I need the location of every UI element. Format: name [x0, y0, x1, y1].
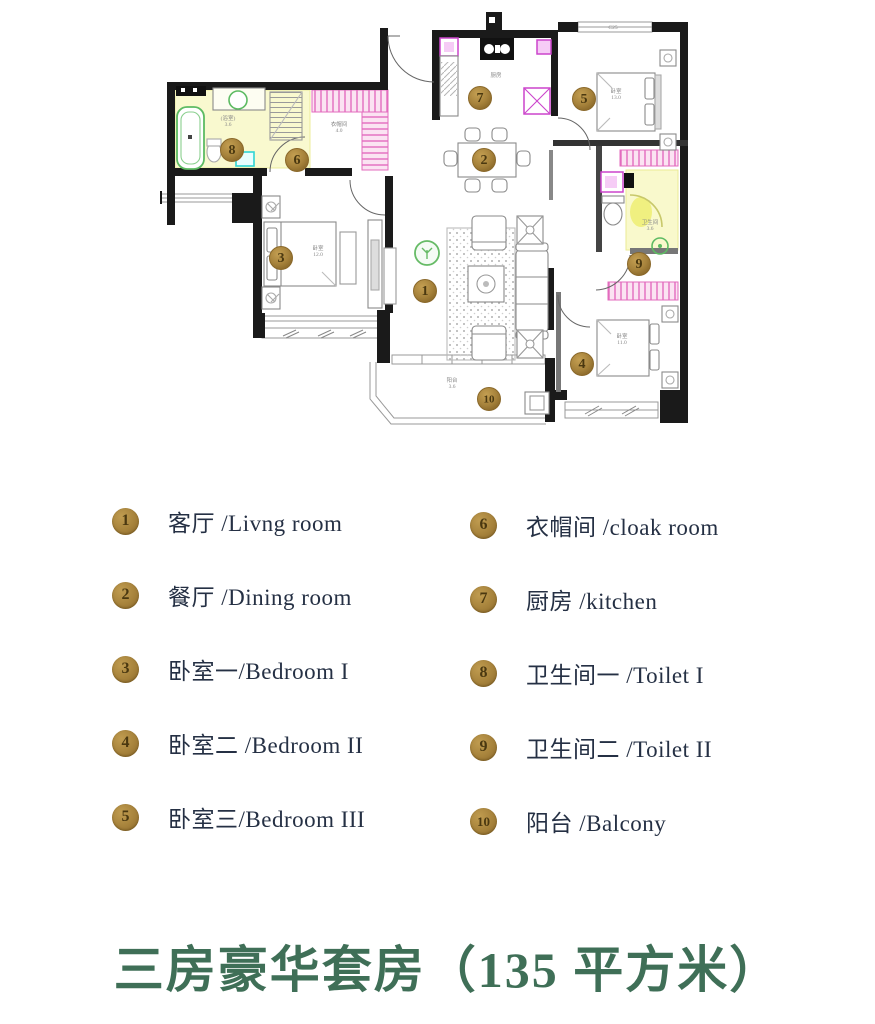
- entry-door-arc: [388, 36, 434, 82]
- toilet2-bowl: [604, 203, 622, 225]
- room-marker-2: 2: [473, 149, 496, 172]
- legend-number-badge: 7: [470, 586, 497, 613]
- bedroom1-door-arc: [350, 180, 385, 215]
- headboard: [655, 75, 661, 129]
- legend-number-badge: 1: [112, 508, 139, 535]
- area-label: 阳台3.6: [446, 376, 458, 390]
- plan-title: 三房豪华套房（135 平方米）: [10, 930, 875, 1002]
- cloak-wardrobe-right: [362, 112, 388, 170]
- wall: [432, 30, 440, 120]
- legend-label: 卧室二 /Bedroom II: [168, 726, 363, 760]
- legend-item-3: 3卧室一/Bedroom I: [112, 651, 349, 687]
- page: (浴室)3.6衣帽间4.0厨房C25卧室13.0卫生间3.6卧室12.0卧室11…: [0, 0, 875, 1024]
- legend-label: 卫生间二 /Toilet II: [526, 730, 712, 764]
- wall: [330, 168, 352, 176]
- wall: [377, 310, 390, 363]
- legend-number-badge: 8: [470, 660, 497, 687]
- room-marker-number: 7: [477, 91, 484, 106]
- wall: [160, 191, 162, 204]
- pillow: [645, 104, 654, 125]
- legend-label: 餐厅 /Dining room: [168, 578, 352, 612]
- area-label: C25: [608, 25, 617, 31]
- chair: [517, 151, 530, 166]
- room-marker-3: 3: [270, 247, 293, 270]
- armchair: [472, 326, 506, 360]
- cabinet: [624, 173, 634, 188]
- room-marker-1: 1: [414, 280, 437, 303]
- room-marker-number: 10: [484, 394, 496, 406]
- legend-number-badge: 4: [112, 730, 139, 757]
- room-marker-number: 4: [579, 357, 586, 372]
- floor-plan: (浴室)3.6衣帽间4.0厨房C25卧室13.0卫生间3.6卧室12.0卧室11…: [160, 8, 695, 432]
- bedroom1-bay-window: [262, 328, 378, 338]
- legend-item-10: 10阳台 /Balcony: [470, 803, 666, 839]
- chair: [492, 128, 507, 141]
- wall: [167, 82, 175, 225]
- wall-shaft: [486, 12, 502, 38]
- legend-label: 客厅 /Livng room: [168, 504, 342, 538]
- balcony-railing-inner: [376, 362, 545, 418]
- legend-number-badge: 10: [470, 808, 497, 835]
- wall: [232, 193, 262, 223]
- room-marker-number: 1: [422, 284, 429, 299]
- kitchen-appliance: [537, 40, 551, 54]
- room-marker-number: 8: [229, 143, 236, 158]
- room-marker-number: 2: [481, 153, 488, 168]
- wall: [660, 390, 688, 423]
- legend-number-badge: 9: [470, 734, 497, 761]
- armchair: [472, 216, 506, 250]
- bedroom2-wardrobe: [608, 282, 678, 300]
- room-marker-number: 5: [581, 92, 588, 107]
- room-marker-7: 7: [469, 87, 492, 110]
- legend-number-badge: 2: [112, 582, 139, 609]
- toilet2-wardrobe: [620, 150, 678, 166]
- pillow: [645, 78, 654, 99]
- wall: [167, 168, 267, 176]
- legend-item-9: 9卫生间二 /Toilet II: [470, 729, 712, 765]
- wall: [680, 22, 688, 400]
- room-marker-6: 6: [286, 149, 309, 172]
- legend-item-5: 5卧室三/Bedroom III: [112, 799, 365, 835]
- legend-item-1: 1客厅 /Livng room: [112, 503, 342, 539]
- pillow: [650, 350, 659, 370]
- area-label: 衣帽间4.0: [331, 120, 348, 134]
- wall: [558, 22, 578, 32]
- wall: [253, 313, 265, 338]
- bed-bench: [340, 232, 356, 284]
- legend-item-4: 4卧室二 /Bedroom II: [112, 725, 363, 761]
- washer-top-icon: [176, 86, 206, 96]
- legend-item-2: 2餐厅 /Dining room: [112, 577, 352, 613]
- pillow: [650, 324, 659, 344]
- legend-item-6: 6衣帽间 /cloak room: [470, 507, 719, 543]
- room-marker-number: 6: [294, 153, 301, 168]
- room-marker-10: 10: [478, 388, 501, 411]
- sink: [229, 91, 247, 109]
- legend-number-badge: 5: [112, 804, 139, 831]
- balcony-railing-outer: [370, 362, 546, 424]
- legend-item-8: 8卫生间一 /Toilet I: [470, 655, 704, 691]
- area-label: 卧室12.0: [312, 244, 324, 258]
- cloak-wardrobe-top: [312, 90, 388, 112]
- area-label: 厨房: [490, 71, 502, 79]
- bedroom1-bay-sill: [262, 316, 378, 321]
- room-marker-5: 5: [573, 88, 596, 111]
- area-label: 卧室13.0: [610, 87, 622, 101]
- legend-item-7: 7厨房 /kitchen: [470, 581, 657, 617]
- legend-label: 厨房 /kitchen: [526, 582, 657, 616]
- chair: [465, 179, 480, 192]
- legend-label: 卫生间一 /Toilet I: [526, 656, 704, 690]
- toilet2-tank: [602, 196, 624, 203]
- toilet1-tank: [207, 139, 221, 146]
- bedroom2-door-arc: [558, 295, 590, 327]
- wall: [551, 30, 558, 116]
- legend-label: 阳台 /Balcony: [526, 804, 666, 838]
- legend-label: 卧室一/Bedroom I: [168, 652, 349, 686]
- room-marker-number: 3: [278, 251, 285, 266]
- sofa: [516, 250, 548, 332]
- media-cabinet: [384, 248, 396, 304]
- legend-label: 衣帽间 /cloak room: [526, 508, 719, 542]
- legend-number-badge: 6: [470, 512, 497, 539]
- wall: [549, 150, 553, 200]
- room-marker-8: 8: [221, 139, 244, 162]
- legend-label: 卧室三/Bedroom III: [168, 800, 365, 834]
- area-label: 卧室11.0: [616, 332, 628, 346]
- tv: [371, 240, 379, 290]
- legend-number-badge: 3: [112, 656, 139, 683]
- room-marker-number: 9: [636, 257, 643, 272]
- room-marker-9: 9: [628, 253, 651, 276]
- chair: [492, 179, 507, 192]
- wall: [596, 146, 602, 252]
- chair: [465, 128, 480, 141]
- wall: [380, 28, 388, 90]
- room-marker-4: 4: [571, 353, 594, 376]
- chair: [444, 151, 457, 166]
- balcony-unit-inner: [530, 396, 544, 410]
